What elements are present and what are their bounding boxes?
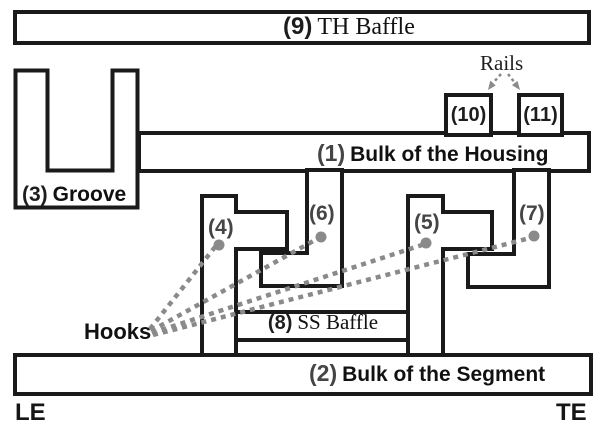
hooks-label: Hooks (84, 321, 151, 343)
hook-5-number: (5) (414, 212, 440, 233)
diagram-canvas: (9)TH Baffle (3)Groove (1)Bulk of the Ho… (0, 0, 600, 432)
leading-edge-label: LE (15, 401, 46, 425)
segment-number: (2) (309, 360, 337, 386)
rails-label: Rails (480, 53, 523, 74)
th-baffle-name: TH Baffle (317, 14, 415, 40)
ss-baffle-label: (8)SS Baffle (238, 312, 408, 333)
hook-7-number: (7) (519, 203, 545, 224)
housing-name: Bulk of the Housing (350, 143, 548, 166)
hook-4-number: (4) (208, 217, 234, 238)
groove-number: (3) (22, 183, 48, 206)
hook-4-dot (214, 240, 225, 251)
segment-name: Bulk of the Segment (342, 363, 545, 386)
rails-arrow-left-head (488, 81, 496, 91)
hook-6-number: (6) (309, 203, 335, 224)
rails-arrow-left-tail (493, 74, 501, 83)
rails-arrow-right-head (512, 81, 520, 90)
rail-10-number: (10) (444, 105, 493, 125)
hook-6-dot (316, 232, 327, 243)
ss-baffle-name: SS Baffle (297, 310, 378, 334)
hook-5-dot (421, 238, 432, 249)
trailing-edge-label: TE (556, 401, 587, 425)
rails-arrows (488, 74, 520, 90)
th-baffle-label: (9)TH Baffle (283, 15, 415, 39)
hook-7-dot (529, 231, 540, 242)
segment-label: (2)Bulk of the Segment (309, 362, 545, 385)
ss-baffle-number: (8) (268, 312, 292, 334)
groove-name: Groove (53, 183, 127, 206)
housing-number: (1) (317, 140, 345, 166)
rails-arrow-right-tail (508, 74, 515, 83)
housing-label: (1)Bulk of the Housing (317, 142, 548, 165)
rail-11-number: (11) (517, 105, 564, 125)
groove-label: (3)Groove (22, 184, 126, 205)
th-baffle-number: (9) (283, 13, 312, 40)
